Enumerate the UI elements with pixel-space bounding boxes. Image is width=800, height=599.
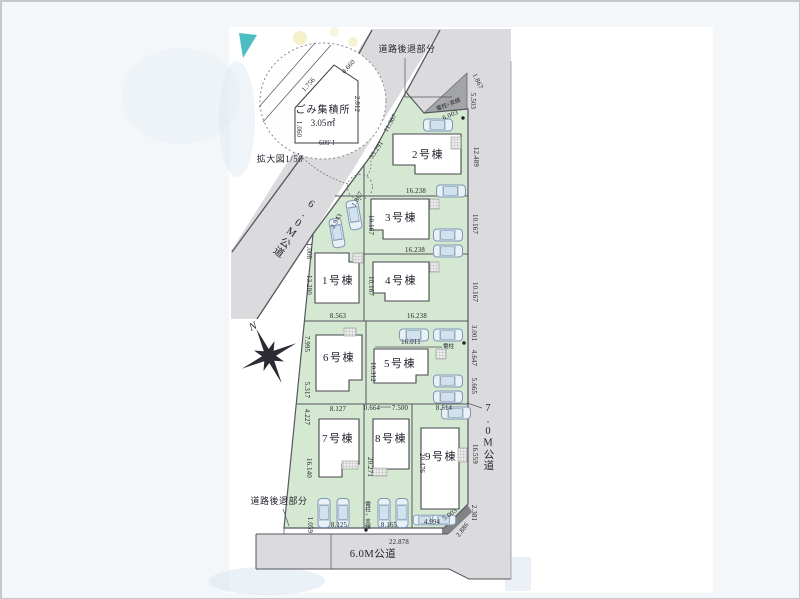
utility-pole-dot bbox=[461, 116, 464, 119]
lot-label-7: 7号棟 bbox=[322, 431, 354, 445]
dim-label: 12.489 bbox=[472, 147, 479, 167]
site-plan: ごみ集積所 3.05㎡ 1.756 0.660 2.812 1.060 1.60… bbox=[1, 1, 800, 599]
car-icon bbox=[434, 245, 463, 257]
car-icon bbox=[437, 185, 466, 197]
porch-5 bbox=[436, 349, 446, 359]
compass-rose: N bbox=[242, 319, 296, 383]
road-label-right: 7.0M公道 bbox=[482, 403, 494, 471]
lot-label-2: 2号棟 bbox=[412, 147, 444, 161]
dim-label: 16.140 bbox=[305, 458, 312, 478]
dim-label: 1.609 bbox=[318, 138, 335, 145]
teal-paint-blob bbox=[239, 33, 257, 58]
porch-3 bbox=[430, 199, 439, 209]
lot-label-9: 9号棟 bbox=[425, 449, 457, 463]
lot-label-6: 6号棟 bbox=[323, 350, 355, 364]
dim-label: 10.167 bbox=[471, 282, 478, 302]
pole-guy-label-bottom: 電柱+支線 bbox=[364, 501, 371, 530]
building-9 bbox=[421, 428, 459, 509]
lot-label-3: 3号棟 bbox=[385, 210, 417, 224]
dim-label: 8.514 bbox=[436, 405, 453, 412]
car-icon bbox=[396, 499, 408, 528]
dim-label: 4.227 bbox=[303, 409, 310, 426]
porch-7 bbox=[342, 461, 358, 469]
dim-label: 8.563 bbox=[330, 313, 347, 320]
dim-label: 10.167 bbox=[367, 215, 374, 235]
dim-label: 8.127 bbox=[330, 406, 347, 413]
pole-label-right: 電柱 bbox=[443, 342, 455, 350]
dim-label: 16.238 bbox=[407, 313, 427, 320]
dim-label: 7.500 bbox=[392, 405, 409, 412]
road-label-bottom: 6.0M公道 bbox=[350, 547, 396, 560]
car-icon bbox=[424, 119, 453, 131]
porch-1 bbox=[353, 253, 363, 263]
dim-label: 4.994 bbox=[424, 519, 441, 526]
car-icon bbox=[434, 391, 463, 403]
dim-label: 0.664 bbox=[364, 405, 381, 412]
dim-label: 5.503 bbox=[469, 93, 476, 110]
garbage-name: ごみ集積所 bbox=[296, 103, 351, 116]
dim-label: 16.559 bbox=[471, 444, 478, 464]
dim-label: 1.060 bbox=[295, 121, 302, 138]
porch-8 bbox=[372, 468, 387, 476]
dim-label: 5.665 bbox=[470, 378, 477, 395]
dim-label: 16.238 bbox=[405, 247, 425, 254]
lot-label-4: 4号棟 bbox=[385, 273, 417, 287]
porch-2 bbox=[451, 137, 461, 149]
dim-label: 16.011 bbox=[401, 339, 421, 346]
dim-label: 1.059 bbox=[306, 517, 313, 534]
dim-label: 22.878 bbox=[389, 539, 409, 546]
dim-label: 20.476 bbox=[418, 453, 425, 473]
dim-label: 4.647 bbox=[470, 350, 477, 367]
car-icon bbox=[434, 375, 463, 387]
car-icon bbox=[434, 229, 463, 241]
setback-label-top: 道路後退部分 bbox=[378, 43, 435, 54]
porch-9 bbox=[458, 448, 467, 462]
dim-label: 10.167 bbox=[367, 276, 374, 296]
dim-label: 2.381 bbox=[470, 505, 477, 521]
dim-label: 2.812 bbox=[353, 96, 360, 113]
dim-label: 3.001 bbox=[470, 325, 477, 341]
car-icon bbox=[434, 329, 463, 341]
dim-label: 7.995 bbox=[303, 336, 310, 353]
lot-label-8: 8号棟 bbox=[375, 431, 407, 445]
dim-label: 10.312 bbox=[369, 362, 376, 382]
garbage-area-value: 3.05㎡ bbox=[311, 118, 336, 128]
dim-label: 1.006 bbox=[305, 243, 312, 260]
porch-4 bbox=[430, 262, 439, 272]
dim-label: 8.165 bbox=[381, 522, 398, 529]
dim-label: 5.317 bbox=[303, 382, 310, 399]
dim-label: 20.271 bbox=[366, 457, 373, 477]
site-plan-page: ごみ集積所 3.05㎡ 1.756 0.660 2.812 1.060 1.60… bbox=[0, 0, 800, 599]
porch-6 bbox=[344, 328, 356, 336]
dim-label: 10.167 bbox=[471, 214, 478, 234]
lot-label-1: 1号棟 bbox=[322, 273, 354, 287]
dim-label: 13.280 bbox=[305, 275, 312, 295]
setback-label-bottom: 道路後退部分 bbox=[250, 495, 307, 506]
car-icon bbox=[318, 499, 330, 528]
dim-label: 16.238 bbox=[406, 188, 426, 195]
lot-label-5: 5号棟 bbox=[384, 356, 416, 370]
scale-note: 拡大図1/50 bbox=[257, 153, 304, 164]
utility-pole-dot bbox=[462, 341, 465, 344]
dim-label: 8.125 bbox=[331, 522, 348, 529]
